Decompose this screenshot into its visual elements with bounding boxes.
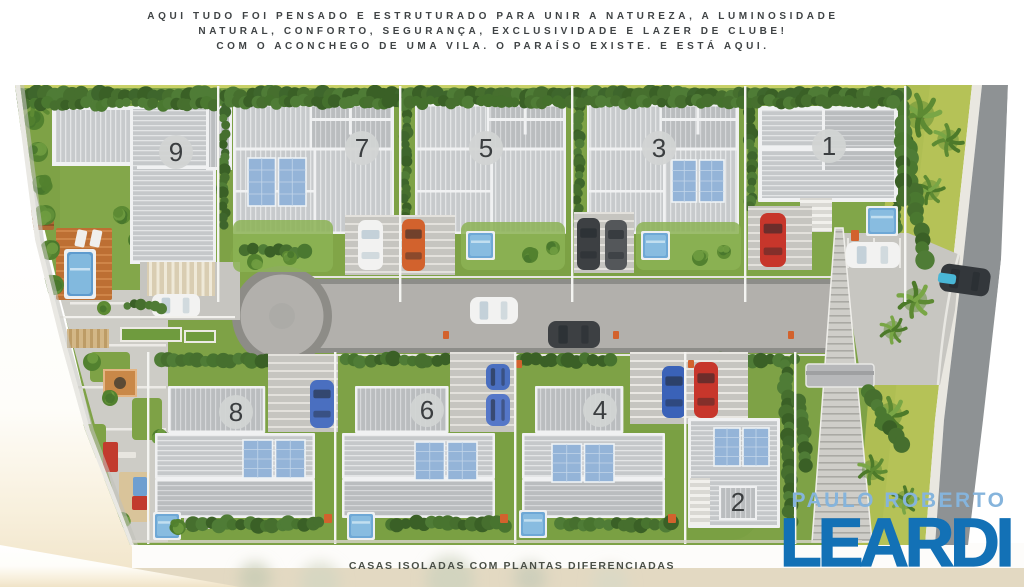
svg-text:8: 8 — [229, 397, 243, 427]
svg-text:3: 3 — [652, 133, 666, 163]
svg-text:7: 7 — [355, 133, 369, 163]
svg-text:2: 2 — [731, 487, 745, 517]
svg-text:9: 9 — [169, 137, 183, 167]
svg-text:6: 6 — [420, 395, 434, 425]
svg-text:4: 4 — [593, 395, 607, 425]
svg-text:1: 1 — [822, 131, 836, 161]
svg-text:5: 5 — [479, 133, 493, 163]
